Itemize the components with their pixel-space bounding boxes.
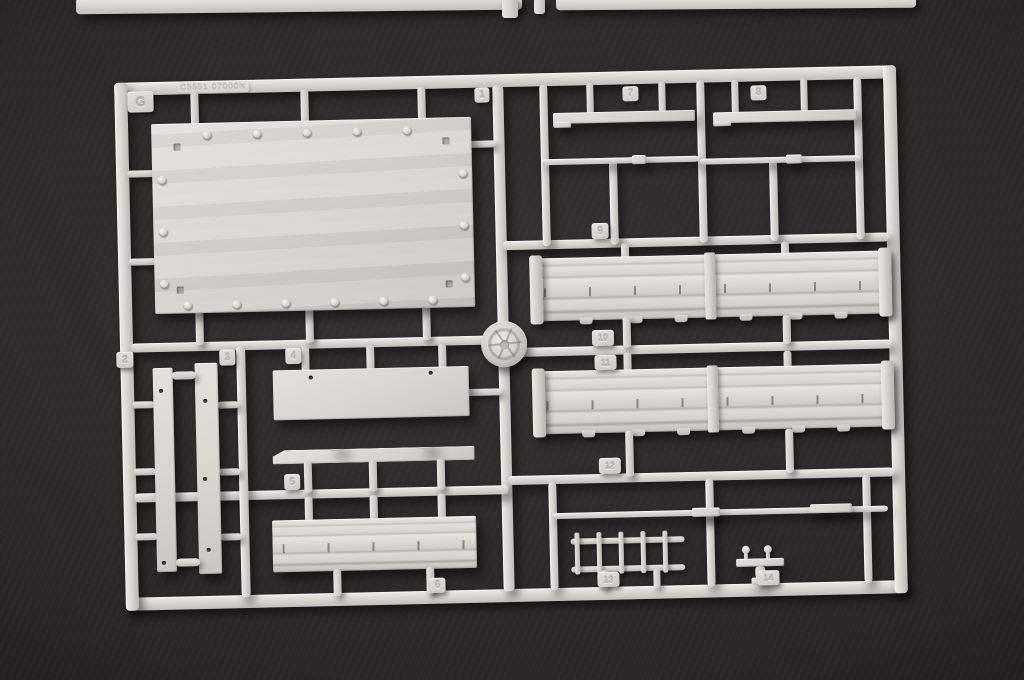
tag-5: 5 (284, 474, 300, 490)
sprue-gate (467, 388, 501, 396)
sprue-gate (782, 315, 791, 344)
mold-code-text: C5551 07000N (177, 82, 249, 94)
part-side-panel-b (536, 363, 891, 434)
frame-right-rail (883, 65, 908, 593)
sprue-gate (129, 258, 156, 266)
tag-9: 9 (591, 223, 608, 239)
sprue-gate (333, 569, 342, 596)
part-round-hub (481, 321, 528, 368)
tag-6: 6 (429, 578, 445, 593)
rod-sleeve (810, 503, 852, 513)
sprue-gate (438, 343, 447, 368)
part-thin-rail-8 (713, 109, 857, 123)
sprue-gate (369, 460, 378, 491)
sprue-gate (622, 316, 631, 347)
sprue-gate (785, 429, 794, 473)
tag-3: 3 (219, 349, 235, 365)
sprue-gate (305, 497, 314, 522)
tag-14: 14 (757, 570, 779, 585)
sprue-gate (625, 430, 634, 476)
sprue-gate (195, 311, 204, 345)
runner-drop (862, 475, 872, 583)
runner-right-middle (505, 339, 891, 357)
tag-10: 10 (592, 330, 614, 346)
sprue-gate (437, 459, 446, 490)
sprue-gate (300, 90, 309, 123)
part-ladder (570, 530, 685, 575)
part-corrugated-panel (151, 117, 475, 314)
sprue-frame-g: C5551 07000N (0, 0, 1024, 680)
runner-drop (609, 160, 619, 245)
sprue-gate (366, 345, 375, 370)
tag-8: 8 (750, 85, 766, 100)
sprue-gate (437, 494, 446, 519)
sprue-gate (190, 92, 199, 125)
photo-canvas: C5551 07000N (0, 0, 1024, 680)
part-thin-rail-7 (553, 110, 695, 124)
sprue-gate (731, 80, 739, 114)
tag-12: 12 (599, 458, 621, 474)
runner-drop (705, 478, 715, 586)
sprue-gate (134, 468, 156, 475)
runner-right-lower (508, 467, 894, 485)
sprue-gate (369, 495, 378, 520)
part-slatted-panel-6 (272, 516, 477, 573)
rod-sleeve (786, 154, 802, 163)
runner-right-upper (503, 232, 889, 250)
rod-sleeve (632, 155, 646, 164)
part-rail-lip (553, 122, 571, 128)
rod-sleeve (692, 507, 720, 517)
part-tie-rod (542, 156, 699, 166)
tag-1: 1 (474, 87, 489, 102)
sprue-gate (586, 83, 594, 114)
tag-11: 11 (594, 355, 616, 370)
tag-2: 2 (116, 352, 133, 368)
sprue-gate (305, 309, 314, 343)
part-rail-lip (713, 121, 731, 126)
sprue-gate (422, 306, 431, 340)
tag-letter-g: G (127, 91, 153, 113)
part-channel-strip-2 (153, 368, 178, 572)
tag-4: 4 (285, 348, 301, 364)
sprue-gate (135, 533, 157, 540)
sprue-gate (653, 569, 660, 588)
strip-cross-link (176, 558, 200, 567)
sprue-gate (469, 140, 495, 148)
sprue-gate (220, 533, 241, 540)
sprue-gate (417, 87, 426, 120)
sprue-gate (304, 462, 313, 493)
part-flat-panel-4 (273, 366, 470, 420)
sprue-gate (132, 401, 154, 408)
runner-left-lower (134, 485, 508, 502)
part-tie-rod (700, 155, 860, 165)
sprue-gate (658, 81, 666, 112)
sprue-gate (219, 468, 240, 475)
part-side-panel-a (533, 250, 888, 321)
runner-left-upper (131, 335, 505, 352)
sprue-gate (800, 78, 808, 112)
part-channel-strip-3 (194, 363, 222, 574)
sprue-gate (301, 347, 310, 372)
strip-cross-link (172, 371, 196, 380)
sprue-gate (127, 170, 154, 178)
tag-13: 13 (597, 572, 619, 587)
sprue-gate (217, 401, 238, 408)
runner-drop (548, 482, 558, 590)
runner-drop (769, 159, 779, 241)
tag-7: 7 (622, 86, 638, 101)
